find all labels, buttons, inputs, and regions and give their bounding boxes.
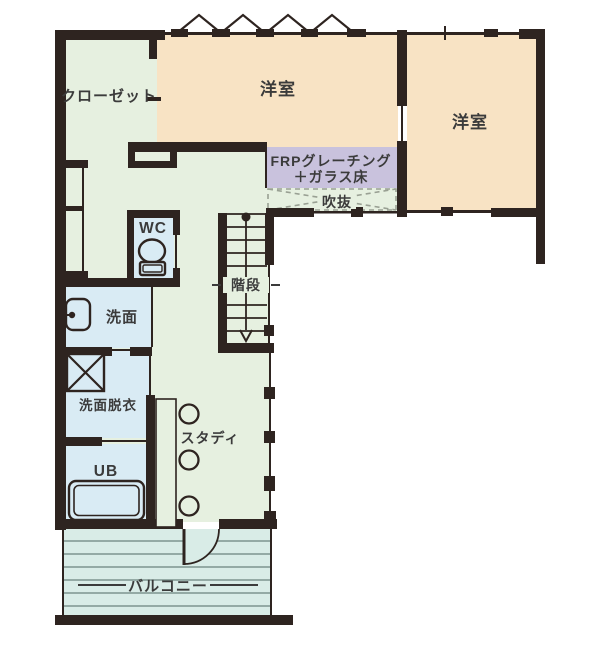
stairs-label: 階段 (231, 277, 261, 293)
closet-label: クローゼット (61, 87, 157, 105)
void-label: 吹抜 (322, 194, 352, 210)
floor-plan-drawing: クローゼット 洋室 洋室 FRPグレーチング ＋ガラス床 吹抜 WC 洗面 階段… (0, 0, 600, 650)
toilet-icon (139, 240, 165, 276)
bathtub-icon (69, 481, 144, 520)
dressing-label: 洗面脱衣 (79, 397, 137, 413)
balcony-label: バルコニー (128, 578, 208, 595)
floor-plan: クローゼット 洋室 洋室 FRPグレーチング ＋ガラス床 吹抜 WC 洗面 階段… (0, 0, 600, 650)
frp-walkway-label-line1: FRPグレーチング (271, 153, 392, 169)
stairs-newel-dot (242, 213, 251, 222)
wc-label: WC (139, 220, 167, 237)
stool-icon (180, 451, 199, 470)
washing-machine-icon (67, 354, 104, 391)
washroom-label: 洗面 (106, 308, 138, 326)
balcony-area (62, 529, 272, 617)
stool-icon (180, 405, 199, 424)
bedroom-right-label: 洋室 (452, 112, 488, 132)
bedroom-top-label: 洋室 (260, 79, 296, 99)
bath-label: UB (94, 463, 118, 480)
study-label: スタディ (180, 430, 239, 446)
frp-walkway-label-line2: ＋ガラス床 (294, 169, 369, 185)
stool-icon (180, 497, 199, 516)
